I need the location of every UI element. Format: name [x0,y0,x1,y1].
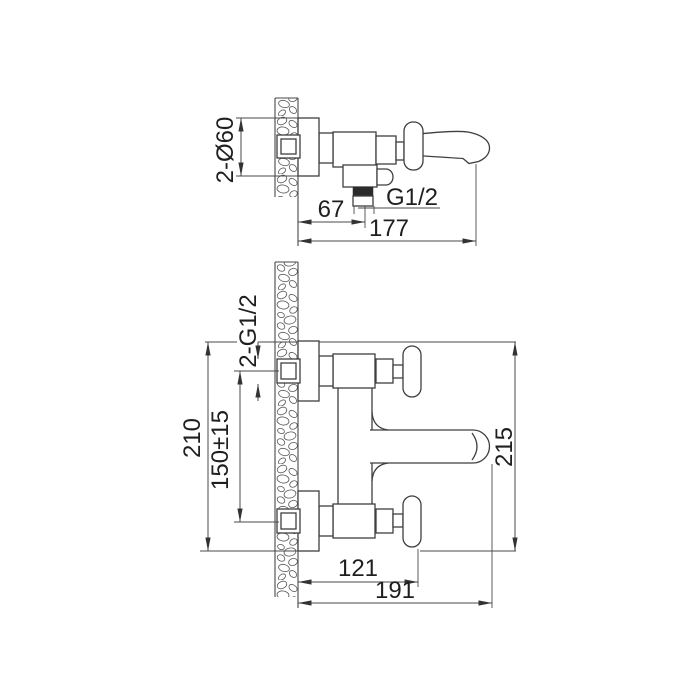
dim-label-overall-projection: 215 [491,427,518,467]
shower-outlet-body [343,165,377,187]
hot-handle [403,346,421,397]
cold-escutcheon [298,491,319,551]
dim-label-wall-to-spout-tip: 191 [375,577,415,604]
mixer-plan-profile [277,341,490,551]
escutcheon [298,118,319,176]
cold-handle-neck [393,514,403,527]
valve-body [333,132,376,167]
dim-label-wall-to-spout: 177 [369,215,409,242]
wall-adapter [319,133,333,163]
plan-view: 2-G1/2 210 150±15 215 121 191 [179,262,518,608]
spout-fillet-top [372,412,388,430]
spout-fill [370,430,490,463]
body-column [338,386,372,506]
bath-mixer-dimension-drawing: 2-Ø60 67 177 G1/2 [0,0,700,700]
spout-fillet-bottom [372,463,388,481]
dim-label-wall-to-outlet: 67 [318,196,345,223]
hot-wall-adapter [319,356,333,386]
outlet-thread-band [353,187,373,196]
cold-handle [403,496,421,547]
spout [418,131,490,163]
handle [404,122,423,170]
outlet-end [353,196,373,206]
dim-label-inlet-spacing: 150±15 [207,410,234,490]
hot-escutcheon [298,341,319,401]
cold-valve-body [333,504,375,538]
cold-handle-stem [376,509,393,533]
hot-handle-stem [376,359,393,383]
hot-valve-body [333,354,375,388]
diverter-knob [377,169,393,185]
dim-label-outlet-thread: G1/2 [386,184,438,211]
cold-wall-adapter [319,506,333,536]
side-view: 2-Ø60 67 177 G1/2 [212,98,490,246]
dim-label-inlet-threads: 2-G1/2 [235,294,262,367]
handle-stem [396,142,404,160]
wall-section [275,98,298,246]
hot-handle-neck [393,365,403,378]
cartridge-housing [376,136,396,164]
dim-label-wall-to-handle: 121 [338,555,378,582]
dim-label-overall-height: 210 [179,418,206,458]
mixer-side-profile [277,118,490,206]
technical-drawing-page: 2-Ø60 67 177 G1/2 [0,0,700,700]
wall-section [275,262,298,608]
dim-label-escutcheon-diameter: 2-Ø60 [212,117,239,184]
